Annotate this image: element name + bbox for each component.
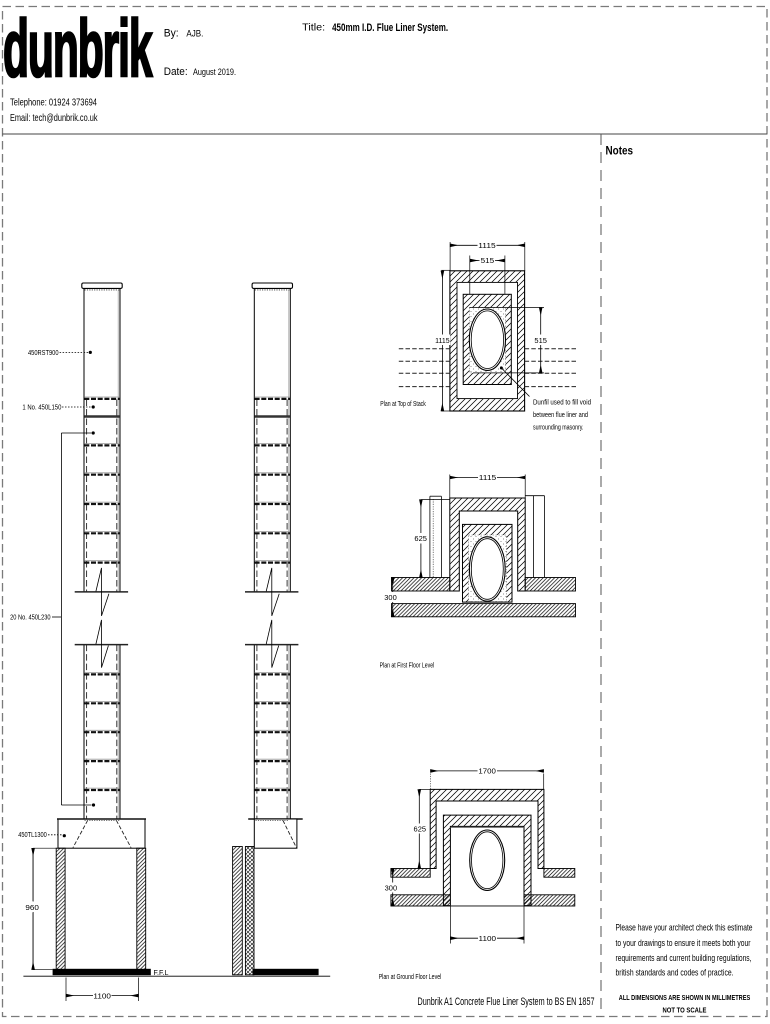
svg-text:1100: 1100 (93, 994, 111, 1001)
svg-text:1115: 1115 (478, 243, 496, 250)
svg-text:August 2019.: August 2019. (193, 67, 236, 77)
svg-text:NOT TO SCALE: NOT TO SCALE (663, 1006, 707, 1015)
svg-text:Email: tech@dunbrik.co.uk: Email: tech@dunbrik.co.uk (10, 113, 98, 124)
svg-text:625: 625 (414, 826, 427, 833)
svg-text:requirements and current build: requirements and current building regula… (616, 953, 752, 963)
svg-text:Dunfil used to fill void: Dunfil used to fill void (533, 398, 591, 407)
svg-text:450TL1300: 450TL1300 (18, 832, 47, 839)
svg-text:1 No. 450L150: 1 No. 450L150 (22, 405, 61, 412)
svg-text:515: 515 (534, 338, 547, 345)
svg-text:Telephone: 01924 373694: Telephone: 01924 373694 (10, 98, 97, 109)
svg-text:515: 515 (481, 258, 495, 265)
svg-text:Date:: Date: (164, 66, 188, 78)
svg-text:20 No. 450L230: 20 No. 450L230 (10, 615, 51, 622)
svg-text:1115: 1115 (435, 338, 450, 345)
svg-text:Title:: Title: (302, 23, 325, 34)
svg-text:300: 300 (384, 595, 397, 602)
svg-text:ALL DIMENSIONS ARE SHOWN IN MI: ALL DIMENSIONS ARE SHOWN IN MILLIMETRES (619, 993, 751, 1002)
svg-text:450mm I.D. Flue Liner System.: 450mm I.D. Flue Liner System. (332, 22, 448, 34)
svg-text:Please have your architect che: Please have your architect check this es… (616, 923, 753, 933)
svg-text:Plan at First Floor Level: Plan at First Floor Level (380, 661, 435, 670)
svg-text:960: 960 (25, 905, 39, 912)
svg-text:AJB.: AJB. (186, 29, 203, 39)
svg-text:Plan at Ground Floor Level: Plan at Ground Floor Level (379, 972, 442, 981)
svg-text:surrounding masonry.: surrounding masonry. (533, 423, 584, 432)
svg-text:between flue liner and: between flue liner and (533, 410, 588, 419)
svg-text:Dunbrik A1 Concrete Flue Liner: Dunbrik A1 Concrete Flue Liner System to… (418, 996, 595, 1008)
svg-text:1100: 1100 (479, 936, 497, 943)
svg-text:to your drawings to ensure it: to your drawings to ensure it meets both… (616, 938, 751, 948)
svg-text:Plan at Top of Stack: Plan at Top of Stack (380, 399, 426, 408)
svg-text:1115: 1115 (479, 475, 497, 482)
svg-text:Notes: Notes (606, 146, 634, 158)
svg-text:300: 300 (385, 885, 398, 892)
svg-text:450RST900: 450RST900 (28, 350, 59, 357)
svg-text:dunbrik: dunbrik (3, 4, 153, 94)
svg-text:By:: By: (164, 28, 179, 40)
svg-text:1700: 1700 (478, 768, 496, 775)
svg-text:british standards and codes of: british standards and codes of practice. (616, 968, 734, 978)
svg-text:625: 625 (414, 536, 427, 543)
